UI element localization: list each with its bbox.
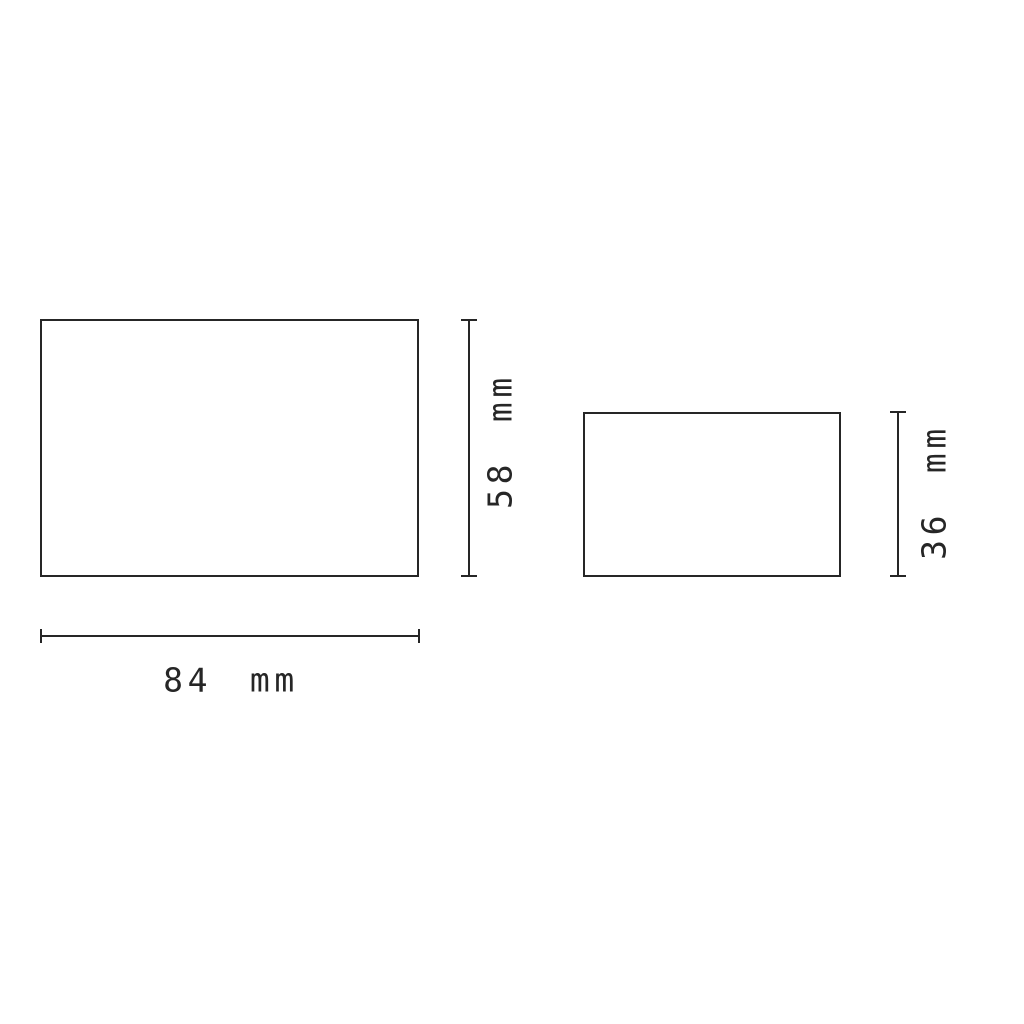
dimension-tick — [890, 575, 906, 577]
dimension-tick — [40, 629, 42, 643]
dimension-tick — [418, 629, 420, 643]
technical-drawing-canvas: 58 mm 84 mm 36 mm — [0, 0, 1024, 1024]
dimension-tick — [461, 575, 477, 577]
small-rectangle — [583, 412, 841, 577]
large-rectangle — [40, 319, 419, 577]
small-height-dimension-line — [897, 412, 899, 576]
dimension-tick — [890, 411, 906, 413]
small-height-dimension-label: 36 mm — [918, 424, 951, 560]
large-width-dimension-line — [41, 635, 419, 637]
dimension-tick — [461, 319, 477, 321]
large-height-dimension-line — [468, 320, 470, 576]
large-height-dimension-label: 58 mm — [484, 373, 517, 509]
large-width-dimension-label: 84 mm — [163, 664, 299, 697]
